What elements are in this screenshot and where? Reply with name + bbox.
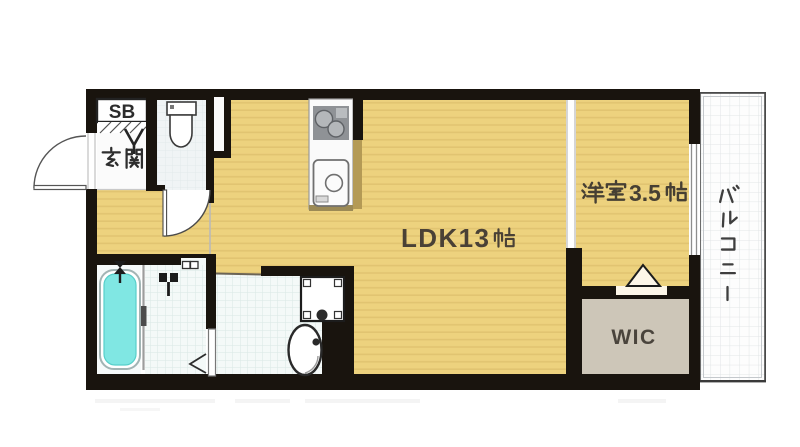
- svg-text:WIC: WIC: [611, 326, 656, 349]
- svg-text:LDK13: LDK13: [401, 223, 489, 253]
- svg-text:SB: SB: [109, 102, 135, 123]
- svg-text:3.5: 3.5: [629, 180, 661, 206]
